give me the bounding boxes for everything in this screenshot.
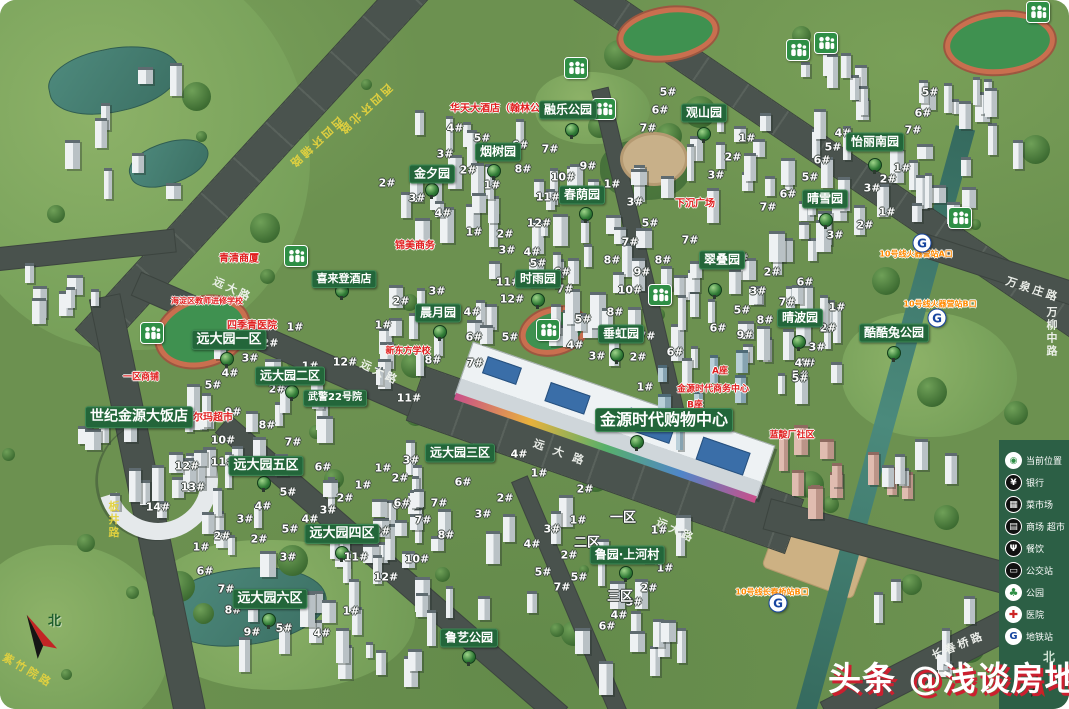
tree-canopy	[250, 213, 280, 243]
building-number: 12#	[175, 460, 200, 473]
tree-marker	[610, 348, 624, 362]
building	[891, 579, 901, 601]
building-number: 3#	[499, 244, 516, 257]
building-number: 3#	[627, 196, 644, 209]
building-number: 9#	[244, 626, 261, 639]
building	[729, 269, 741, 294]
building-number: 1#	[484, 179, 501, 192]
building-number: 2#	[392, 472, 409, 485]
building	[687, 144, 694, 181]
loc-icon: ◉	[1005, 452, 1022, 469]
community-label: 鲁园·上河村	[590, 546, 665, 565]
building-number: 3#	[475, 508, 492, 521]
subway-entrance-label: 10号线火器营站B口	[903, 299, 976, 310]
building	[427, 610, 436, 646]
building-number: 5#	[642, 217, 659, 230]
building	[778, 373, 785, 394]
building-number: 7#	[431, 497, 448, 510]
building	[661, 620, 676, 642]
building-number: 6#	[814, 154, 831, 167]
building	[414, 489, 424, 507]
tree-canopy	[196, 131, 207, 142]
community-label: 垂虹园	[598, 325, 644, 344]
building-number: 4#	[511, 448, 528, 461]
tree-canopy	[61, 669, 72, 680]
park-label: 融乐公园	[539, 101, 597, 120]
legend-item-label: 公园	[1026, 586, 1044, 599]
people-icon	[1026, 1, 1050, 23]
poi-label: 一区商铺	[123, 370, 159, 383]
building-number: 10#	[405, 553, 430, 566]
building-number: 4#	[314, 627, 331, 640]
poi-label: 海淀区教师进修学校	[171, 296, 243, 307]
building	[801, 62, 810, 77]
building-number: 5#	[802, 171, 819, 184]
building-number: 3#	[437, 148, 454, 161]
building	[65, 140, 80, 169]
building-number: 5#	[282, 523, 299, 536]
building	[945, 453, 957, 484]
building	[25, 263, 34, 283]
building	[631, 169, 647, 185]
map-compass: 北	[18, 610, 58, 666]
tree-canopy	[47, 205, 65, 223]
building	[917, 144, 933, 159]
building-number: 1#	[193, 541, 210, 554]
building	[472, 193, 486, 213]
building-number: 2#	[337, 492, 354, 505]
legend-item: G地铁站	[1005, 628, 1069, 645]
building	[930, 185, 946, 203]
poi-label: 金源时代商务中心	[677, 382, 749, 395]
building-number: 7#	[682, 234, 699, 247]
legend-item: Ψ餐饮	[1005, 540, 1069, 557]
building-number: 5#	[276, 622, 293, 635]
tree-marker	[619, 566, 633, 580]
community-label: 怡丽南园	[846, 133, 904, 152]
tree-marker	[579, 207, 593, 221]
building	[317, 416, 333, 443]
building-number: 1#	[355, 479, 372, 492]
park-label: 酷酷兔公园	[859, 324, 929, 343]
building-number: 5#	[575, 313, 592, 326]
building-number: 3#	[708, 169, 725, 182]
building-number: 3#	[280, 551, 297, 564]
building	[486, 531, 500, 564]
tree-canopy	[126, 586, 139, 599]
building-number: 4#	[567, 339, 584, 352]
building	[792, 470, 804, 496]
community-label: 远大园二区	[255, 367, 325, 386]
building-number: 1#	[604, 178, 621, 191]
building-number: 10#	[211, 434, 236, 447]
building-number: 6#	[394, 497, 411, 510]
people-icon	[284, 245, 308, 267]
building	[915, 439, 928, 470]
building-number: 5#	[922, 86, 939, 99]
people-icon	[814, 32, 838, 54]
tree-marker	[462, 650, 476, 664]
building-number: 2#	[857, 219, 874, 232]
building-number: 2#	[725, 151, 742, 164]
building	[248, 607, 258, 622]
tree-marker	[697, 127, 711, 141]
legend-item-label: 银行	[1026, 476, 1044, 489]
building-number: 5#	[734, 304, 751, 317]
building-number: 7#	[415, 514, 432, 527]
building	[581, 220, 589, 243]
building	[781, 158, 795, 185]
people-icon	[648, 284, 672, 306]
building	[1013, 140, 1023, 169]
tree-marker	[630, 435, 644, 449]
community-label: 远大园六区	[232, 589, 307, 609]
community-label: 观山园	[681, 104, 727, 123]
poi-label: 下沉广场	[675, 195, 715, 210]
building-number: 2#	[577, 483, 594, 496]
building	[691, 346, 698, 368]
tree-marker	[257, 476, 271, 490]
building	[91, 289, 99, 306]
community-label: 金源时代购物中心	[595, 408, 733, 432]
building-number: 7#	[760, 201, 777, 214]
building	[95, 118, 107, 148]
building	[769, 231, 785, 262]
tree-marker	[262, 613, 276, 627]
tree-marker	[792, 335, 806, 349]
tree-marker	[819, 213, 833, 227]
district-label: 一区	[610, 507, 636, 526]
legend-item-label: 当前位置	[1026, 454, 1062, 467]
building	[832, 463, 842, 487]
subway-station-icon: G	[913, 234, 932, 253]
people-icon	[948, 207, 972, 229]
legend-item-label: 公交站	[1026, 564, 1053, 577]
people-icon	[786, 39, 810, 61]
tree-canopy	[934, 505, 959, 530]
community-label: 世纪金源大饭店	[85, 406, 193, 428]
legend-item-label: 商场 超市	[1026, 520, 1065, 533]
building	[882, 465, 894, 487]
building-number: 4#	[222, 367, 239, 380]
building	[376, 650, 386, 675]
building	[32, 298, 46, 324]
community-label: 春荫园	[559, 186, 605, 205]
building	[841, 53, 851, 78]
building-number: 1#	[466, 226, 483, 239]
building	[213, 488, 222, 516]
building	[925, 173, 932, 208]
building-number: 8#	[604, 254, 621, 267]
building-number: 5#	[530, 257, 547, 270]
building-number: 4#	[524, 538, 541, 551]
legend-item-label: 餐饮	[1026, 542, 1044, 555]
building	[674, 275, 684, 295]
community-label: 翠叠园	[699, 251, 745, 270]
building-number: 6#	[915, 107, 932, 120]
building-number: 1#	[829, 301, 846, 314]
bus-icon: ▭	[1005, 562, 1022, 579]
people-icon	[564, 57, 588, 79]
tree-marker	[708, 283, 722, 297]
building-number: 6#	[315, 461, 332, 474]
poi-label: 蓝靛厂社区	[769, 428, 814, 441]
people-icon	[536, 319, 560, 341]
building-number: 4#	[464, 306, 481, 319]
building-number: 4#	[255, 500, 272, 513]
building-number: 4#	[435, 207, 452, 220]
building-number: 5#	[205, 379, 222, 392]
building-number: 5#	[571, 571, 588, 584]
legend-item-label: 菜市场	[1026, 498, 1053, 511]
building-number: 8#	[438, 529, 455, 542]
aerial-map: 融乐公园观山园怡丽南园烟树园金夕园春荫园晴雪园翠叠园喜来登酒店时雨园晨月园晴波园…	[0, 0, 1069, 709]
building-number: 2#	[393, 295, 410, 308]
building	[372, 499, 387, 517]
building-number: 7#	[542, 143, 559, 156]
legend-item: ▦菜市场	[1005, 496, 1069, 513]
building-number: 8#	[655, 254, 672, 267]
building-number: 2#	[641, 582, 658, 595]
tree-canopy	[822, 496, 839, 513]
community-label: 晨月园	[415, 304, 461, 323]
tree-canopy	[77, 534, 95, 552]
bank-icon: ¥	[1005, 474, 1022, 491]
building	[478, 596, 490, 620]
community-label: 金夕园	[409, 165, 455, 184]
legend-items: ◉当前位置¥银行▦菜市场▤商场 超市Ψ餐饮▭公交站♣公园✚医院G地铁站	[1005, 452, 1069, 645]
district-label: 三区	[607, 586, 633, 605]
building-number: 13#	[181, 481, 206, 494]
building	[736, 350, 748, 373]
building-number: 2#	[497, 228, 514, 241]
building-number: 7#	[622, 236, 639, 249]
building-number: 8#	[607, 306, 624, 319]
legend-item: ✚医院	[1005, 606, 1069, 623]
building-number: 1#	[879, 206, 896, 219]
tree-canopy	[435, 567, 450, 582]
building	[952, 99, 959, 114]
building-number: 7#	[640, 122, 657, 135]
building	[944, 83, 952, 113]
building-number: 12#	[500, 293, 525, 306]
building-number: 1#	[375, 319, 392, 332]
poi-label: 新东方学校	[385, 344, 430, 357]
building	[859, 86, 868, 115]
legend-item-label: 地铁站	[1026, 630, 1053, 643]
tree-canopy	[1021, 135, 1050, 164]
building-number: 1#	[287, 321, 304, 334]
building	[85, 429, 101, 450]
tree-marker	[887, 346, 901, 360]
tree-marker	[285, 385, 299, 399]
legend-item: ♣公园	[1005, 584, 1069, 601]
building	[488, 196, 499, 223]
building	[138, 67, 153, 84]
building-number: 3#	[237, 513, 254, 526]
building	[170, 63, 182, 96]
building-number: 1#	[739, 132, 756, 145]
building	[973, 77, 980, 105]
building	[959, 101, 971, 129]
building-number: 2#	[379, 177, 396, 190]
building-number: 6#	[780, 188, 797, 201]
building-number: 3#	[320, 504, 337, 517]
building-number: 3#	[403, 454, 420, 467]
building-number: 9#	[580, 160, 597, 173]
building-number: 10#	[551, 171, 576, 184]
mall-icon: ▤	[1005, 518, 1022, 535]
building-number: 7#	[554, 581, 571, 594]
building	[757, 326, 770, 360]
building	[132, 153, 144, 173]
building-number: 11#	[536, 191, 561, 204]
tree-canopy	[917, 377, 947, 407]
watermark-text: 头条 @浅谈房地产	[828, 652, 1069, 700]
building-number: 1#	[570, 514, 587, 527]
community-label: 喜来登酒店	[312, 270, 377, 288]
building	[630, 631, 645, 652]
building-number: 1#	[651, 524, 668, 537]
building-number: 3#	[809, 341, 826, 354]
tree-canopy	[361, 79, 372, 90]
building	[104, 168, 112, 199]
building	[799, 222, 809, 239]
community-label: 远大园一区	[191, 330, 266, 350]
building	[814, 109, 826, 139]
building	[66, 287, 75, 308]
building-number: 2#	[251, 533, 268, 546]
people-icon	[140, 322, 164, 344]
building-number: 6#	[652, 104, 669, 117]
building	[599, 661, 613, 695]
building-number: 5#	[825, 141, 842, 154]
building-number: 11#	[344, 551, 369, 564]
building	[808, 486, 823, 519]
building	[827, 54, 838, 88]
building-number: 6#	[667, 346, 684, 359]
tree-marker	[220, 352, 234, 366]
building-number: 1#	[637, 381, 654, 394]
legend-item: ¥银行	[1005, 474, 1069, 491]
road-name: 板井路	[105, 501, 121, 540]
building-number: 7#	[905, 124, 922, 137]
park-icon: ♣	[1005, 584, 1022, 601]
tree-marker	[487, 164, 501, 178]
community-label: 远大园四区	[304, 524, 379, 544]
building	[129, 468, 141, 502]
building-number: 3#	[409, 192, 426, 205]
building-number: 2#	[460, 164, 477, 177]
subway-icon: G	[1005, 628, 1022, 645]
building	[553, 214, 568, 246]
tree-canopy	[2, 448, 15, 461]
building-number: 2#	[880, 173, 897, 186]
building	[868, 452, 879, 485]
building	[503, 514, 515, 542]
building	[166, 183, 181, 199]
tree-marker	[565, 123, 579, 137]
building	[395, 520, 407, 536]
building-number: 1#	[375, 462, 392, 475]
building	[677, 628, 686, 663]
road-name: 万柳中路	[1043, 306, 1059, 358]
building	[322, 600, 336, 623]
legend-item: ◉当前位置	[1005, 452, 1069, 469]
legend-item: ▤商场 超市	[1005, 518, 1069, 535]
building-number: 6#	[197, 565, 214, 578]
building	[260, 551, 276, 577]
tree-marker	[425, 183, 439, 197]
map-screenshot: 融乐公园观山园怡丽南园烟树园金夕园春荫园晴雪园翠叠园喜来登酒店时雨园晨月园晴波园…	[0, 0, 1069, 709]
tree-canopy	[550, 623, 564, 637]
building-number: 5#	[792, 372, 809, 385]
tree-canopy	[872, 267, 900, 295]
building	[678, 295, 686, 330]
community-label: 武警22号院	[303, 390, 367, 407]
poi-label: 青清商厦	[219, 250, 259, 265]
tree-marker	[868, 158, 882, 172]
community-label: 晴波园	[777, 309, 823, 328]
building	[246, 411, 258, 432]
building	[831, 362, 842, 383]
tree-marker	[433, 325, 447, 339]
building-number: 6#	[466, 331, 483, 344]
building	[446, 586, 453, 618]
building-number: 8#	[515, 163, 532, 176]
building	[962, 187, 976, 208]
building	[820, 439, 834, 459]
tree-canopy	[260, 269, 275, 284]
building	[575, 628, 590, 654]
subway-station-icon: G	[769, 594, 788, 613]
tree-canopy	[901, 574, 922, 595]
building-number: 5#	[280, 486, 297, 499]
building	[985, 88, 997, 117]
poi-label: 锦美商务	[395, 237, 435, 252]
tree-marker	[531, 293, 545, 307]
building	[895, 454, 905, 484]
building	[708, 299, 715, 323]
building-number: 11#	[397, 392, 422, 405]
building-number: 4#	[447, 122, 464, 135]
building-number: 3#	[750, 285, 767, 298]
tree-canopy	[1004, 401, 1028, 425]
hospital-icon: ✚	[1005, 606, 1022, 623]
tree-canopy	[182, 82, 211, 111]
building-number: 4#	[795, 357, 812, 370]
building	[760, 113, 771, 131]
building-number: 3#	[544, 523, 561, 536]
building-number: 6#	[797, 276, 814, 289]
building	[239, 637, 250, 672]
community-label: 远大园三区	[425, 444, 495, 463]
poi-label: A座	[712, 364, 728, 377]
building-number: 1#	[531, 467, 548, 480]
building	[415, 110, 424, 135]
community-label: 晴雪园	[802, 190, 848, 209]
building	[202, 512, 214, 534]
building	[366, 642, 373, 658]
building	[850, 75, 859, 100]
building-number: 3#	[429, 285, 446, 298]
subway-station-icon: G	[928, 309, 947, 328]
building	[874, 592, 883, 623]
building-number: 1#	[343, 605, 360, 618]
building	[988, 123, 997, 155]
building	[152, 465, 164, 501]
building-number: 7#	[467, 357, 484, 370]
